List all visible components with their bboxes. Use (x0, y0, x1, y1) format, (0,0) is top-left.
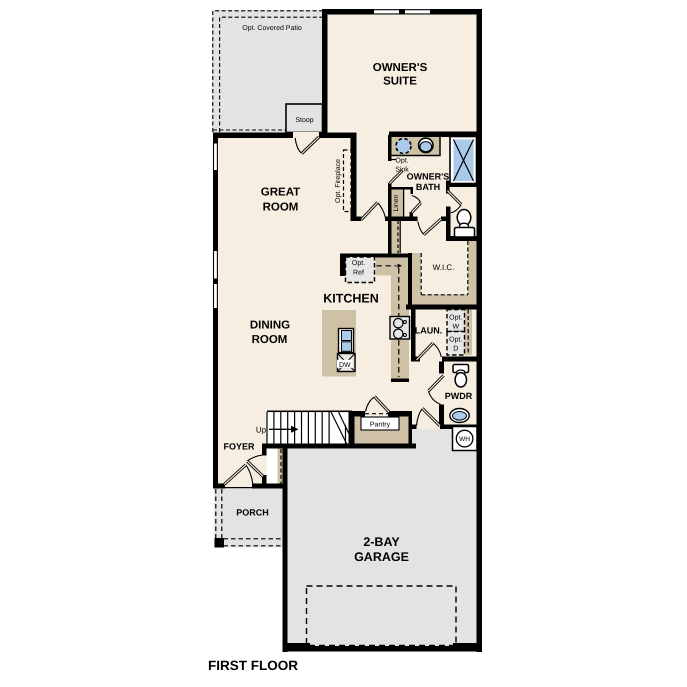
svg-text:Opt.: Opt. (352, 260, 365, 267)
svg-text:W.I.C.: W.I.C. (433, 263, 455, 272)
svg-text:Opt.: Opt. (449, 315, 462, 322)
svg-text:2-BAY: 2-BAY (363, 535, 400, 549)
svg-text:Opt. Covered Patio: Opt. Covered Patio (242, 24, 302, 32)
svg-text:SUITE: SUITE (383, 76, 417, 88)
svg-text:ROOM: ROOM (252, 334, 288, 346)
svg-text:DINING: DINING (250, 320, 290, 332)
svg-text:Up: Up (256, 425, 267, 434)
svg-text:DW: DW (339, 362, 351, 369)
svg-text:Stoop: Stoop (295, 117, 313, 124)
svg-text:Opt.: Opt. (395, 158, 408, 165)
svg-text:W: W (452, 324, 459, 331)
svg-text:FIRST FLOOR: FIRST FLOOR (208, 658, 298, 673)
svg-text:ROOM: ROOM (263, 202, 299, 214)
svg-text:PORCH: PORCH (236, 508, 269, 518)
svg-text:FOYER: FOYER (223, 442, 255, 452)
svg-text:OWNER'S: OWNER'S (373, 62, 428, 74)
svg-text:PWDR: PWDR (445, 391, 473, 401)
svg-text:BATH: BATH (416, 182, 440, 192)
svg-text:Opt. Fireplace: Opt. Fireplace (334, 159, 342, 203)
svg-text:Pantry: Pantry (370, 422, 391, 429)
svg-text:GREAT: GREAT (261, 187, 300, 199)
svg-text:WH: WH (459, 436, 470, 443)
svg-text:D: D (453, 346, 458, 353)
svg-text:LAUN.: LAUN. (415, 326, 443, 336)
svg-text:Linen: Linen (392, 194, 400, 211)
svg-text:Opt.: Opt. (449, 337, 462, 344)
svg-text:OWNER'S: OWNER'S (407, 172, 450, 182)
svg-text:KITCHEN: KITCHEN (323, 292, 379, 306)
svg-text:Ref: Ref (353, 269, 364, 277)
svg-text:GARAGE: GARAGE (354, 550, 409, 564)
